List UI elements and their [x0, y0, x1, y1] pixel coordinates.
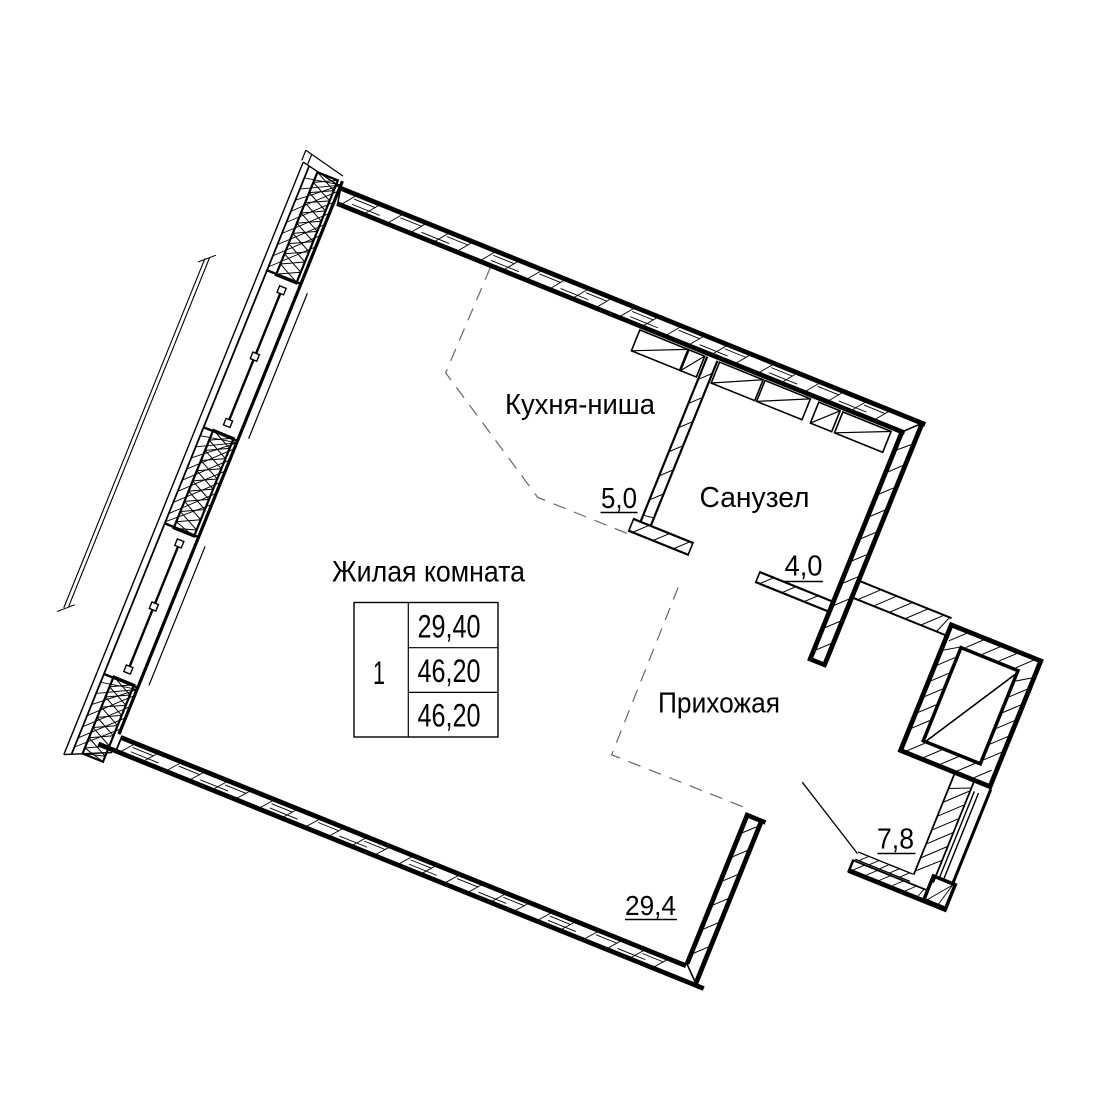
- svg-text:Жилая комната: Жилая комната: [332, 556, 525, 589]
- svg-text:7,8: 7,8: [877, 824, 914, 856]
- svg-text:Кухня-ниша: Кухня-ниша: [505, 389, 656, 421]
- svg-text:Санузел: Санузел: [700, 482, 810, 514]
- svg-text:1: 1: [373, 655, 385, 691]
- svg-text:5,0: 5,0: [601, 483, 637, 515]
- svg-text:29,4: 29,4: [625, 890, 676, 921]
- svg-text:46,20: 46,20: [418, 698, 481, 734]
- svg-text:46,20: 46,20: [418, 653, 481, 689]
- svg-text:Прихожая: Прихожая: [658, 688, 780, 720]
- svg-text:29,40: 29,40: [418, 609, 481, 645]
- svg-text:4,0: 4,0: [785, 551, 823, 583]
